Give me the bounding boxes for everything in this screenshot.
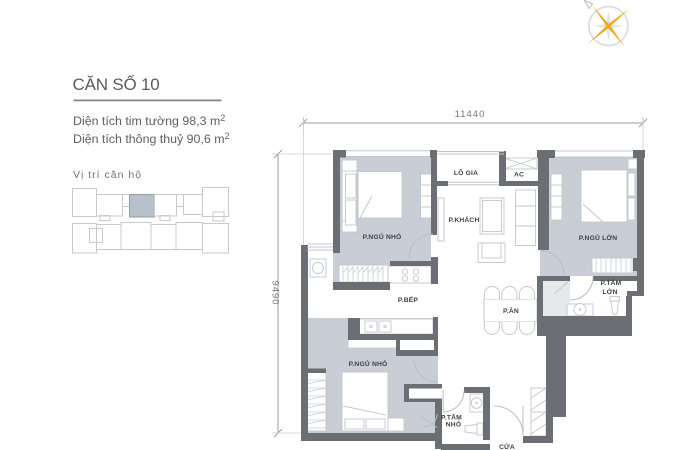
svg-text:Diện tích tim tường 98,3 m2: Diện tích tim tường 98,3 m2 <box>73 113 225 128</box>
svg-text:P.TẮM: P.TẮM <box>441 413 462 422</box>
svg-text:CỬA: CỬA <box>499 442 515 450</box>
svg-text:LỚN: LỚN <box>602 287 617 296</box>
svg-text:P.TẮM: P.TẮM <box>601 278 622 287</box>
svg-text:Diện tích thông thuỷ 90,6 m2: Diện tích thông thuỷ 90,6 m2 <box>73 131 230 146</box>
svg-text:P.NGỦ LỚN: P.NGỦ LỚN <box>579 233 618 242</box>
svg-text:11440: 11440 <box>455 109 486 120</box>
svg-text:P.NGỦ NHỎ: P.NGỦ NHỎ <box>363 232 402 241</box>
svg-text:NHỎ: NHỎ <box>446 420 461 429</box>
svg-text:P.ĂN: P.ĂN <box>503 306 519 315</box>
svg-text:P.NGỦ NHỎ: P.NGỦ NHỎ <box>349 359 388 368</box>
svg-text:Vị trí căn hộ: Vị trí căn hộ <box>73 169 142 181</box>
svg-text:CĂN SỐ 10: CĂN SỐ 10 <box>73 74 160 94</box>
svg-text:LÔ GIA: LÔ GIA <box>454 168 478 177</box>
svg-text:P.KHÁCH: P.KHÁCH <box>448 215 479 224</box>
svg-text:AC: AC <box>514 172 524 179</box>
svg-text:9490: 9490 <box>270 280 281 305</box>
